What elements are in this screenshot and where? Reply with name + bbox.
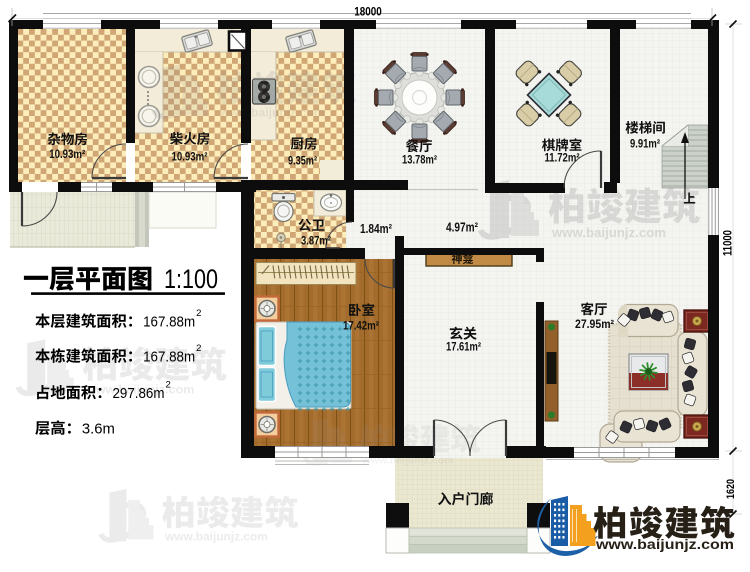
- svg-text:9.91m²: 9.91m²: [630, 137, 660, 151]
- svg-text:18000: 18000: [354, 7, 382, 19]
- svg-text:4.97m²: 4.97m²: [446, 221, 478, 235]
- svg-text:1.84m²: 1.84m²: [360, 222, 392, 236]
- svg-text:3.87m²: 3.87m²: [301, 234, 331, 248]
- svg-text:167.88m: 167.88m: [143, 314, 195, 331]
- svg-text:27.95m²: 27.95m²: [575, 317, 614, 331]
- svg-text:1620: 1620: [725, 479, 737, 499]
- svg-text:167.88m: 167.88m: [143, 349, 195, 366]
- svg-text:2: 2: [196, 343, 201, 354]
- svg-text:17.42m²: 17.42m²: [343, 319, 379, 333]
- svg-text:www.baijunjz.com: www.baijunjz.com: [595, 537, 734, 552]
- svg-text:13.78m²: 13.78m²: [402, 153, 437, 167]
- svg-text:1:100: 1:100: [164, 264, 218, 294]
- svg-text:10.93m²: 10.93m²: [49, 147, 85, 161]
- svg-text:11.72m²: 11.72m²: [545, 151, 580, 165]
- svg-text:11000: 11000: [723, 230, 735, 256]
- svg-text:2: 2: [166, 380, 171, 391]
- svg-text:9.35m²: 9.35m²: [288, 154, 317, 168]
- svg-text:2: 2: [196, 308, 201, 319]
- svg-text:297.86m: 297.86m: [113, 385, 165, 402]
- svg-text:10.93m²: 10.93m²: [172, 150, 208, 164]
- svg-text:3.6m: 3.6m: [82, 421, 115, 438]
- svg-text:17.61m²: 17.61m²: [446, 340, 481, 354]
